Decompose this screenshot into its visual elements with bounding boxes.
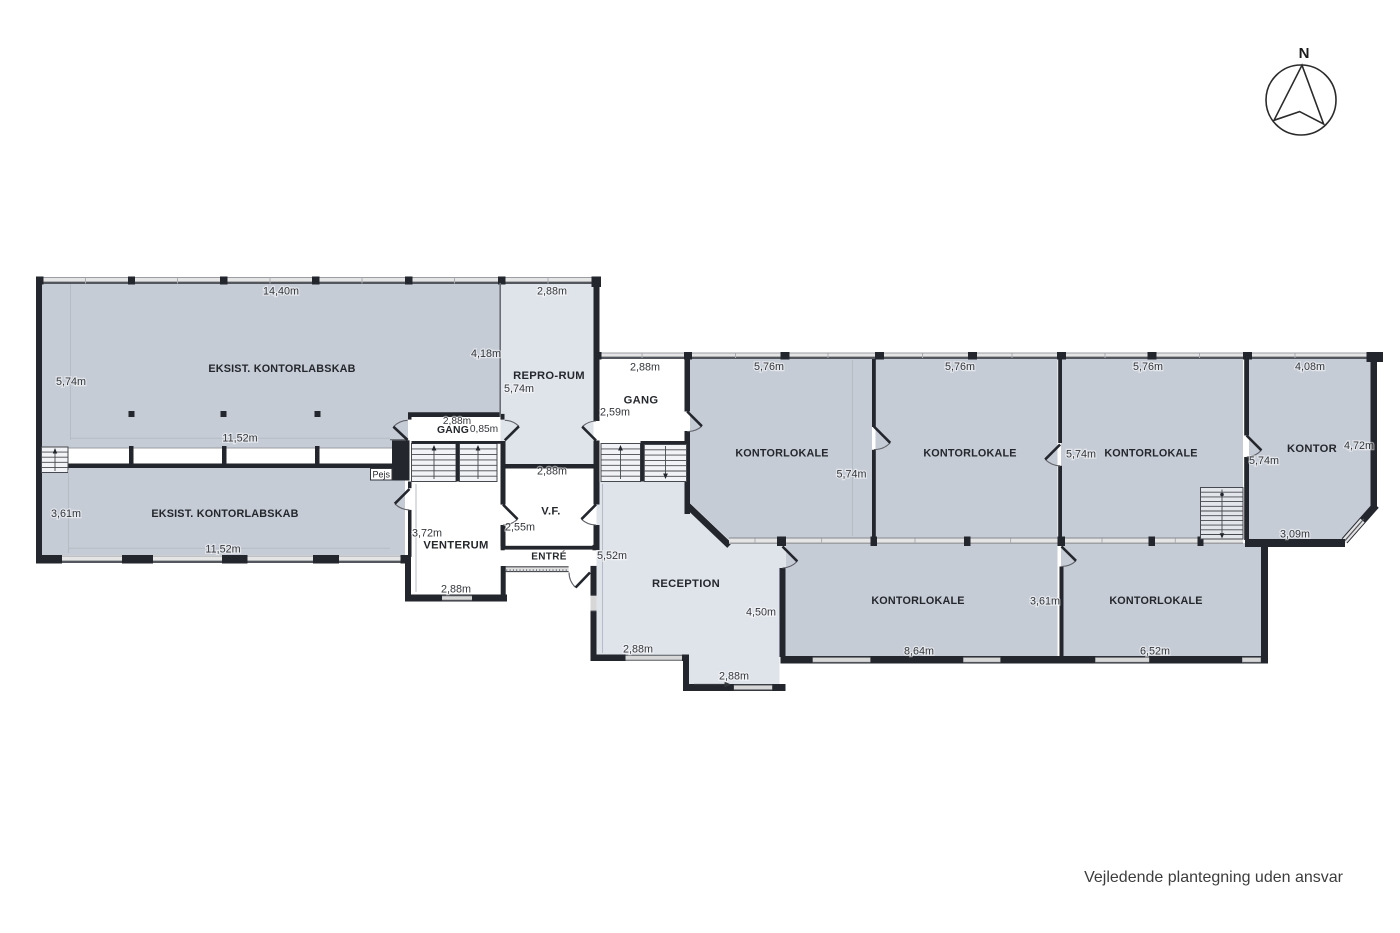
svg-text:3,61m: 3,61m xyxy=(1030,596,1060,608)
svg-text:3,72m: 3,72m xyxy=(412,528,442,540)
svg-text:2,88m: 2,88m xyxy=(630,362,660,374)
svg-text:Pejs: Pejs xyxy=(373,469,391,479)
svg-text:8,64m: 8,64m xyxy=(904,646,934,658)
svg-text:VENTERUM: VENTERUM xyxy=(423,540,488,552)
svg-text:4,08m: 4,08m xyxy=(1295,361,1325,373)
svg-text:5,74m: 5,74m xyxy=(56,376,86,388)
svg-text:0,85m: 0,85m xyxy=(470,424,498,435)
svg-text:RECEPTION: RECEPTION xyxy=(652,578,720,590)
svg-text:11,52m: 11,52m xyxy=(205,544,240,556)
svg-text:5,74m: 5,74m xyxy=(1066,449,1096,461)
svg-text:5,76m: 5,76m xyxy=(754,361,784,373)
svg-text:Vejledende plantegning uden an: Vejledende plantegning uden ansvar xyxy=(1084,869,1344,886)
svg-text:KONTORLOKALE: KONTORLOKALE xyxy=(871,595,964,607)
svg-text:KONTORLOKALE: KONTORLOKALE xyxy=(1109,595,1202,607)
svg-text:14,40m: 14,40m xyxy=(263,286,299,298)
svg-text:V.F.: V.F. xyxy=(541,506,560,518)
svg-text:EKSIST. KONTORLABSKAB: EKSIST. KONTORLABSKAB xyxy=(151,508,298,520)
svg-text:EKSIST. KONTORLABSKAB: EKSIST. KONTORLABSKAB xyxy=(208,363,355,375)
svg-text:5,74m: 5,74m xyxy=(504,383,534,395)
svg-text:3,09m: 3,09m xyxy=(1280,529,1310,541)
svg-text:KONTORLOKALE: KONTORLOKALE xyxy=(923,448,1016,460)
svg-text:2,88m: 2,88m xyxy=(719,671,749,683)
svg-text:4,72m: 4,72m xyxy=(1344,440,1374,452)
svg-text:REPRO-RUM: REPRO-RUM xyxy=(513,370,585,382)
svg-text:2,88m: 2,88m xyxy=(441,584,471,596)
svg-text:11,52m: 11,52m xyxy=(222,433,257,445)
svg-text:GANG: GANG xyxy=(437,425,469,436)
svg-text:2,59m: 2,59m xyxy=(600,407,630,419)
svg-text:2,88m: 2,88m xyxy=(623,644,653,656)
svg-text:4,18m: 4,18m xyxy=(471,348,501,360)
svg-text:5,76m: 5,76m xyxy=(1133,361,1163,373)
svg-text:5,74m: 5,74m xyxy=(836,469,866,481)
svg-text:KONTORLOKALE: KONTORLOKALE xyxy=(1104,448,1197,460)
svg-text:4,50m: 4,50m xyxy=(746,607,776,619)
svg-text:5,74m: 5,74m xyxy=(1249,455,1279,467)
svg-text:KONTOR: KONTOR xyxy=(1287,443,1337,455)
svg-text:5,52m: 5,52m xyxy=(597,550,627,562)
svg-text:N: N xyxy=(1299,45,1310,62)
svg-text:2,88m: 2,88m xyxy=(537,466,567,478)
svg-text:5,76m: 5,76m xyxy=(945,361,975,373)
svg-text:KONTORLOKALE: KONTORLOKALE xyxy=(735,448,828,460)
svg-text:2,88m: 2,88m xyxy=(537,286,567,298)
svg-text:2,55m: 2,55m xyxy=(505,522,535,534)
svg-text:6,52m: 6,52m xyxy=(1140,646,1170,658)
svg-text:3,61m: 3,61m xyxy=(51,508,81,520)
svg-text:GANG: GANG xyxy=(624,395,659,407)
svg-text:ENTRÉ: ENTRÉ xyxy=(531,550,566,563)
